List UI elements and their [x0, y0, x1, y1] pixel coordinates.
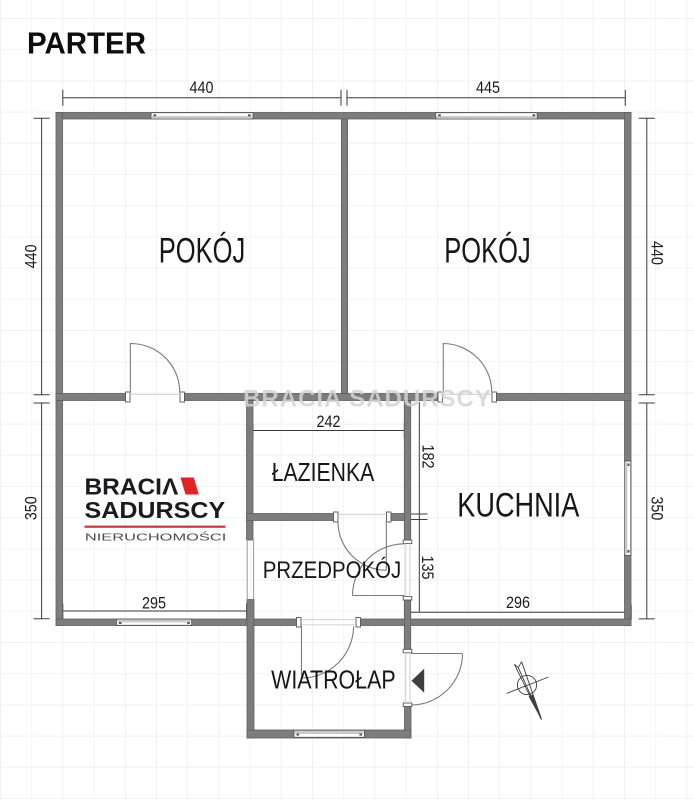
- svg-text:WIATROŁAP: WIATROŁAP: [271, 664, 396, 694]
- svg-text:SADURSCY: SADURSCY: [85, 497, 226, 523]
- svg-text:350: 350: [648, 496, 667, 520]
- svg-text:BRACIΛ: BRACIΛ: [85, 474, 179, 500]
- svg-text:ŁAZIENKA: ŁAZIENKA: [272, 457, 375, 487]
- svg-text:KUCHNIA: KUCHNIA: [457, 487, 579, 525]
- svg-text:296: 296: [506, 593, 530, 612]
- svg-text:295: 295: [142, 594, 166, 613]
- svg-text:NIERUCHOMOŚCI: NIERUCHOMOŚCI: [85, 532, 226, 544]
- svg-text:440: 440: [648, 241, 667, 265]
- svg-text:440: 440: [190, 78, 214, 97]
- svg-text:PRZEDPOKÓJ: PRZEDPOKÓJ: [263, 557, 402, 584]
- svg-text:BRACIA SADURSCY: BRACIA SADURSCY: [243, 386, 492, 413]
- svg-text:350: 350: [22, 496, 41, 520]
- svg-text:182: 182: [418, 445, 437, 469]
- svg-text:242: 242: [317, 412, 341, 431]
- svg-text:POKÓJ: POKÓJ: [444, 231, 531, 270]
- svg-text:445: 445: [476, 78, 500, 97]
- svg-text:POKÓJ: POKÓJ: [159, 231, 246, 270]
- svg-text:440: 440: [22, 244, 41, 268]
- svg-text:PARTER: PARTER: [27, 26, 146, 61]
- svg-text:135: 135: [418, 556, 437, 580]
